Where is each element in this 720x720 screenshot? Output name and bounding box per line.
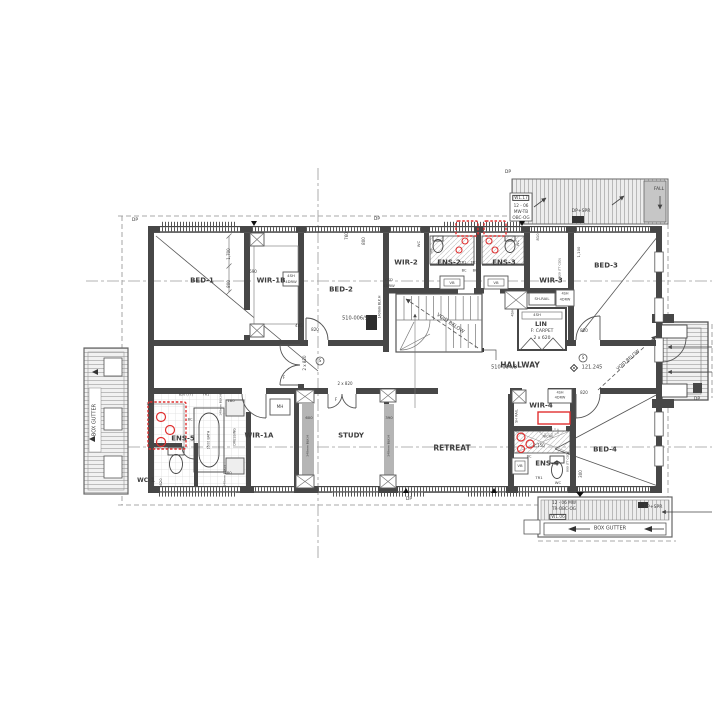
tiled-floors: [150, 236, 570, 487]
box-gutter-left-strip: [84, 348, 128, 494]
box-gutter-bottom-strip: [524, 497, 712, 537]
roof-strip-top: [510, 179, 668, 224]
bulkheads: [302, 404, 394, 476]
linen-closet: [518, 308, 566, 350]
floor-plan-drawing: [0, 0, 720, 720]
floor-plan-canvas: BED-1WIR-1BBED-2WIR-2ENS-2ENS-3WIR-3BED-…: [0, 0, 720, 720]
